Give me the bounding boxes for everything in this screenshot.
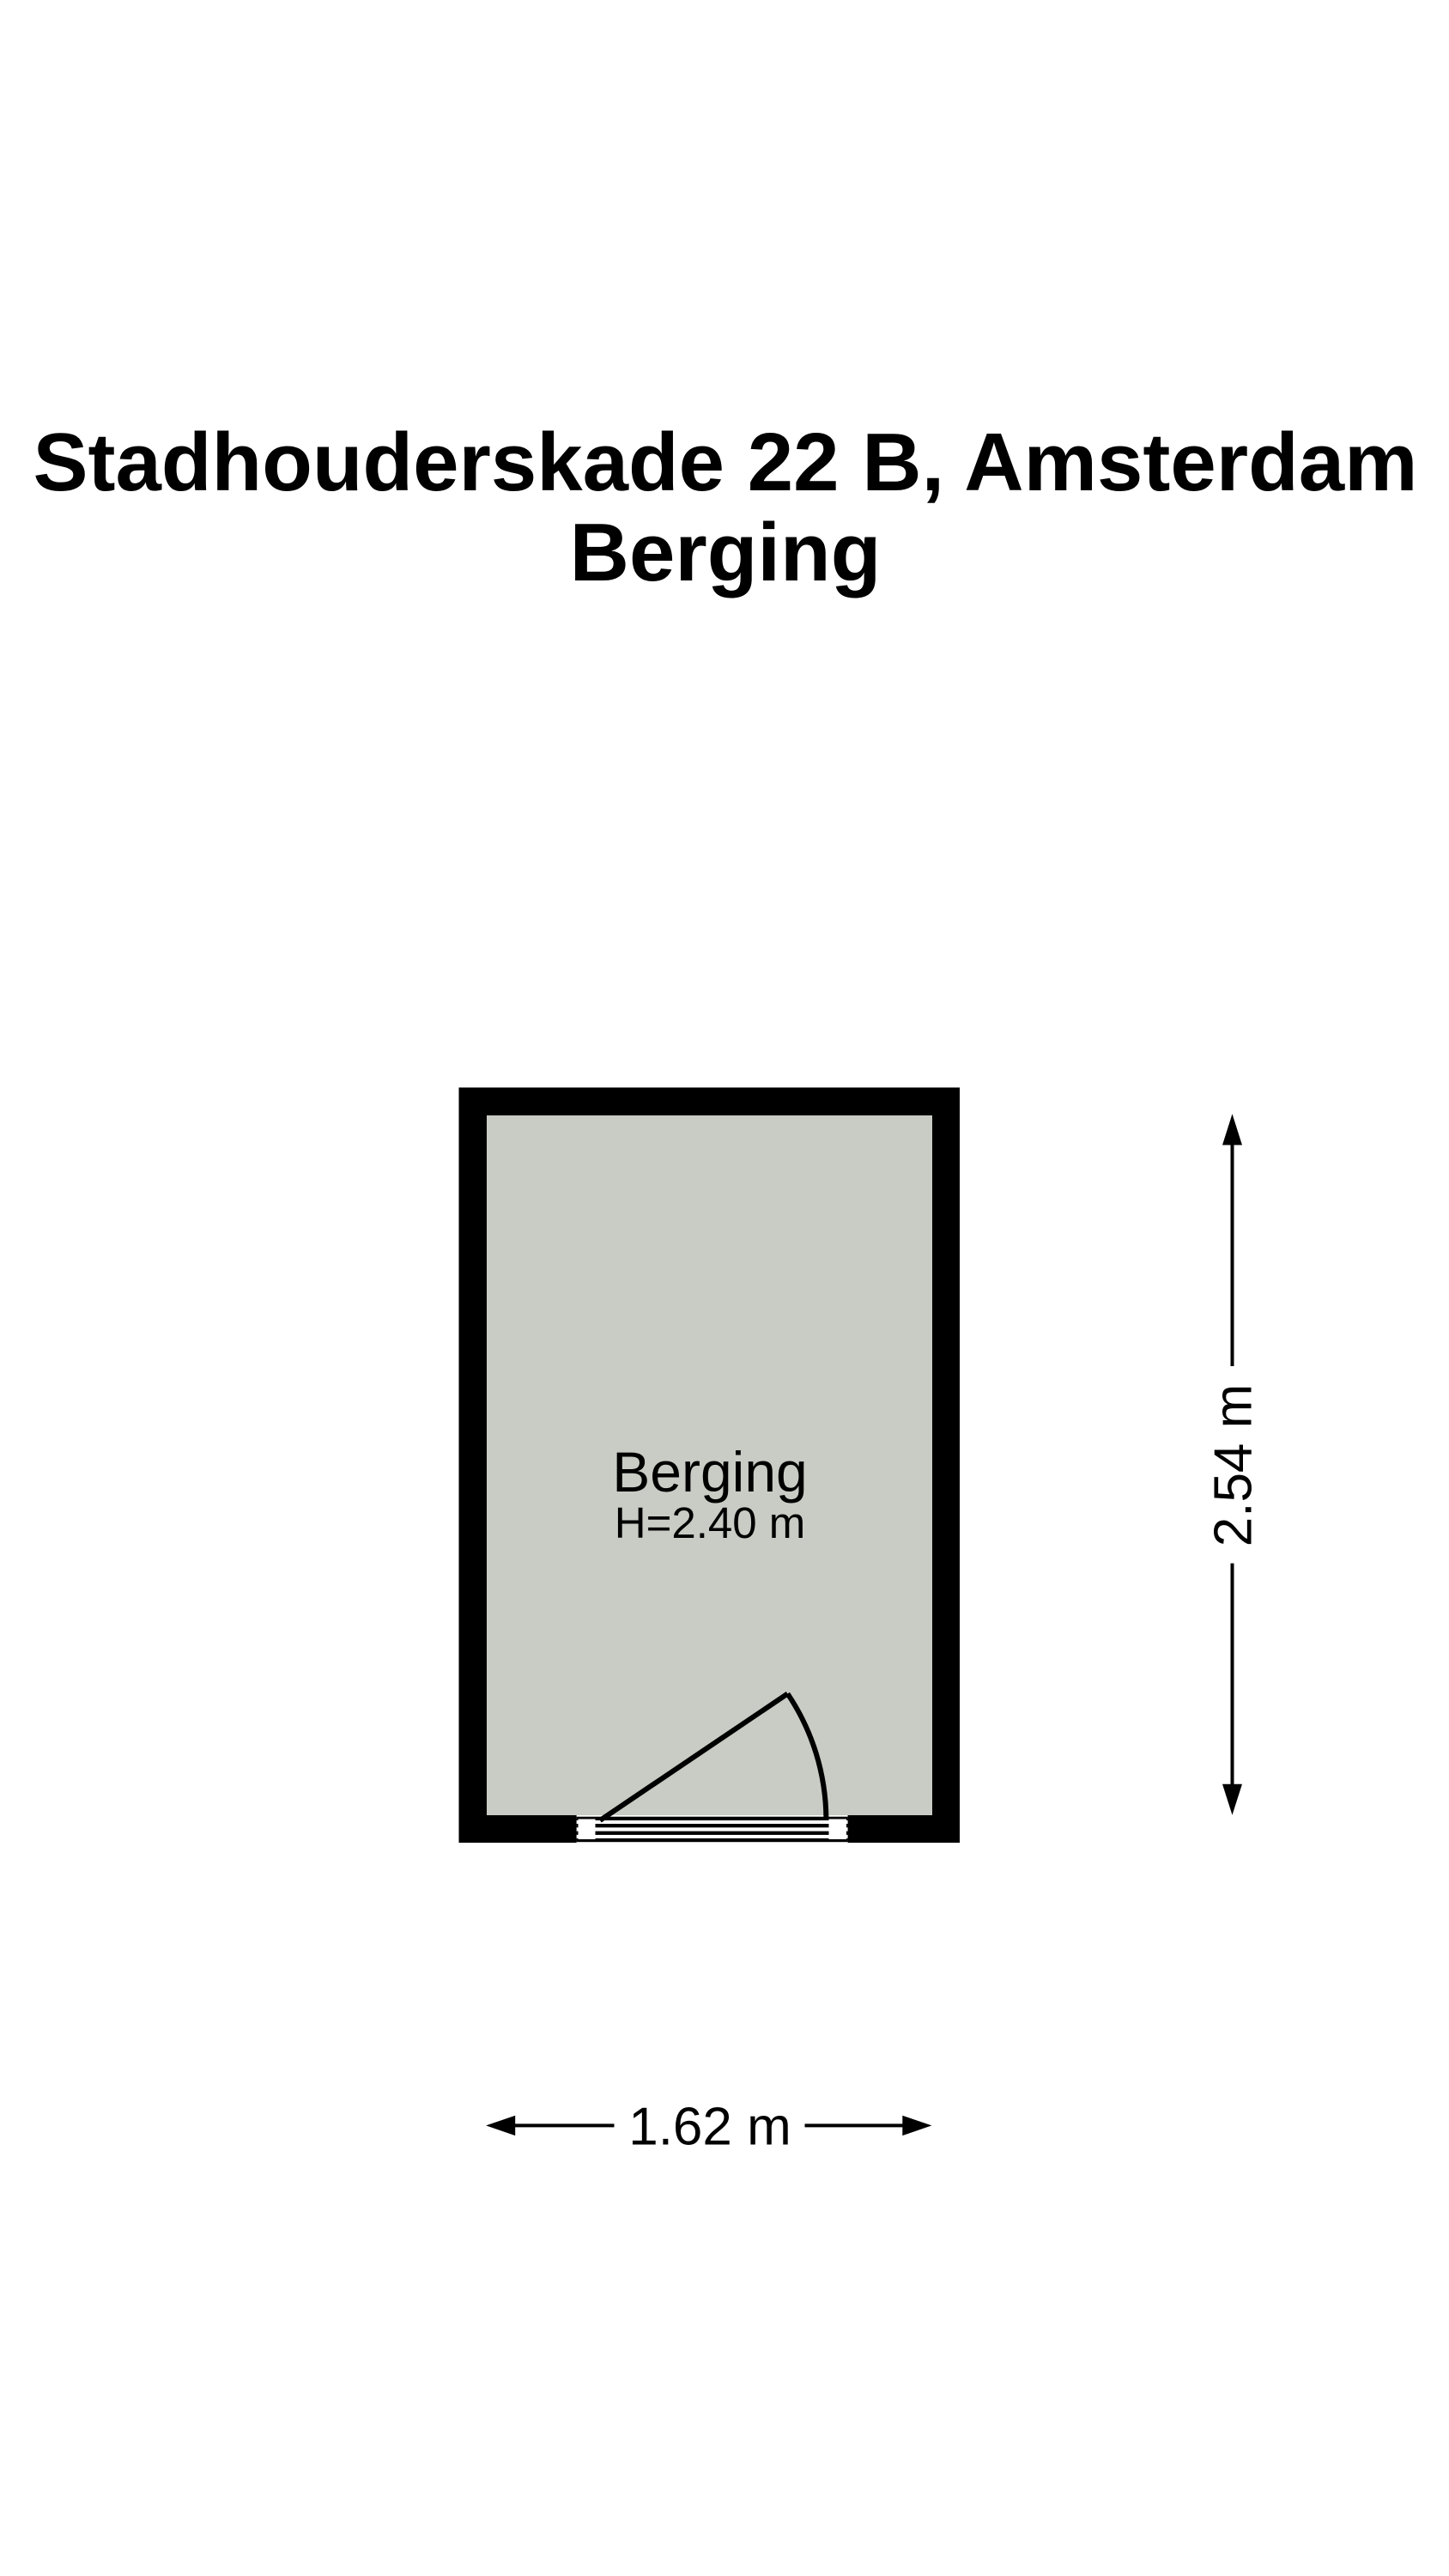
svg-text:Berging: Berging: [570, 507, 882, 598]
svg-text:Berging: Berging: [612, 1440, 808, 1504]
svg-text:H=2.40 m: H=2.40 m: [615, 1498, 806, 1547]
svg-text:Stadhouderskade 22 B, Amsterda: Stadhouderskade 22 B, Amsterdam: [33, 416, 1418, 508]
svg-text:2.54 m: 2.54 m: [1204, 1384, 1264, 1547]
svg-text:1.62 m: 1.62 m: [628, 2098, 791, 2157]
